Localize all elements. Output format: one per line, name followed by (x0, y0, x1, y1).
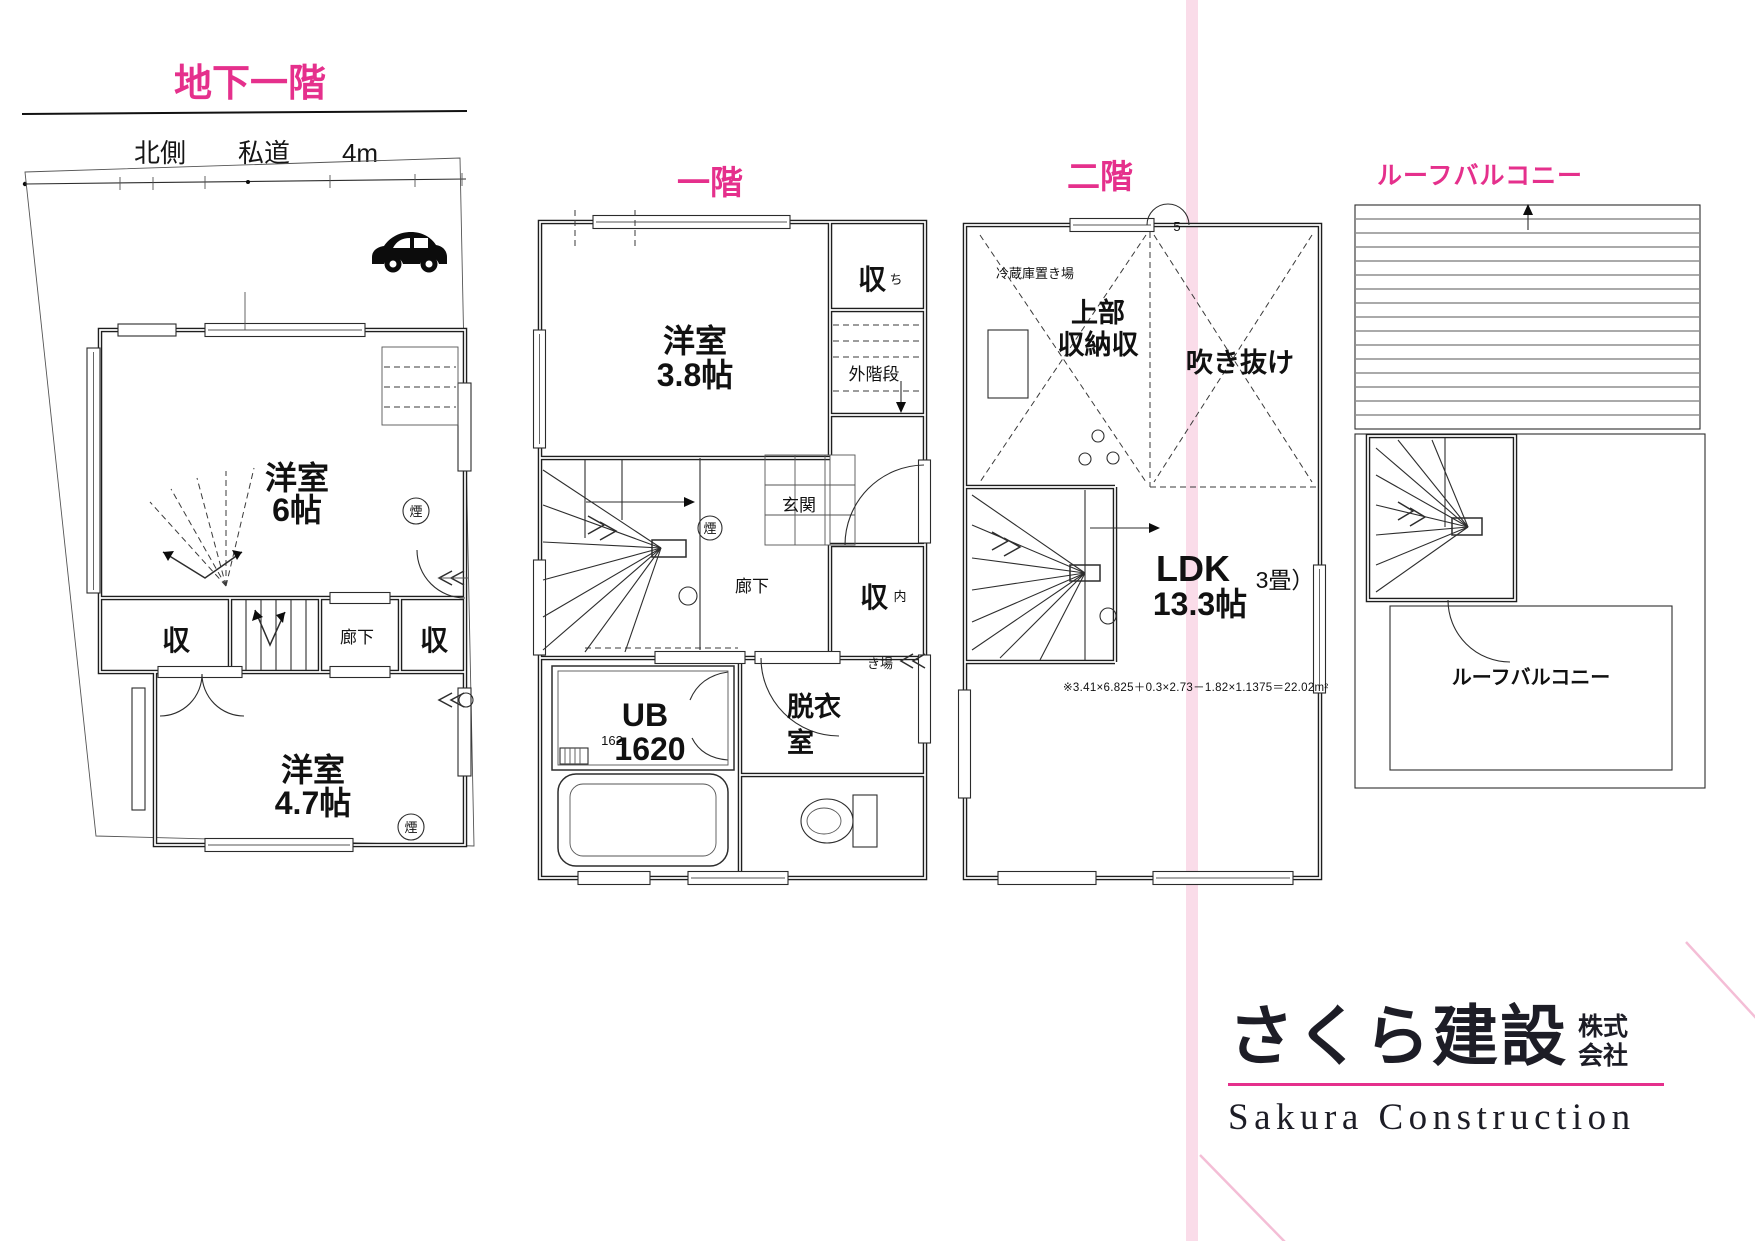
f2-void-label: 吹き抜け (1186, 348, 1294, 378)
f2-storage-label-l2: 収納収 (1058, 329, 1140, 360)
svg-text:煙: 煙 (703, 521, 716, 536)
b1-closet-dashed (382, 347, 458, 425)
f2-posts (1079, 430, 1119, 465)
floorplan-sheet: 北側 私道 4m (0, 0, 1755, 1241)
f2-ldk-size: 13.3帖 (1153, 586, 1247, 622)
car-icon (372, 232, 447, 273)
f1-ext-stairs-label: 外階段 (849, 365, 900, 384)
dimension-line (23, 173, 466, 190)
f1-ub-note: 162 (601, 733, 623, 748)
b1-room-lower-size: 4.7帖 (275, 785, 352, 821)
balcony-outer (1355, 434, 1705, 788)
b1-closet-left-label: 収 (162, 625, 191, 656)
f1-closet-top-note: ち (889, 272, 902, 287)
f1-entrance-label: 玄関 (782, 496, 816, 515)
second-floor-title: 二階 (950, 150, 1250, 198)
b1-room-upper-size: 6帖 (272, 492, 322, 528)
second-floor-plan: 5 冷蔵庫置き場 上部 収納収 吹き抜け LDK 13.3帖 3畳） (959, 204, 1329, 885)
company-name-en: Sakura Construction (1228, 1096, 1664, 1139)
roof-balcony-plan: ルーフバルコニー (1355, 204, 1705, 788)
f2-stairs-icon (972, 490, 1160, 660)
smoke-mark-icon: 煙 (403, 498, 429, 524)
company-logo: さくら建設 株式 会社 Sakura Construction (1228, 1002, 1664, 1139)
first-floor-plan: 洋室 3.8帖 収 ち 外階段 玄関 煙 廊下 収 内 き場 UB 1620 1… (534, 210, 931, 885)
roof-balcony-title: ルーフバルコニー (1320, 156, 1640, 192)
f1-dressing-room-label-l2: 室 (787, 727, 814, 758)
f1-room-size: 3.8帖 (657, 357, 734, 393)
basement-floor-plan: 北側 私道 4m (22, 111, 474, 852)
basement-title: 地下一階 (60, 52, 440, 107)
f2-windows (959, 219, 1326, 885)
b1-corridor-label: 廊下 (340, 628, 374, 647)
road-label: 北側 私道 4m (134, 138, 378, 168)
f1-room-name: 洋室 (663, 323, 727, 359)
f1-stairs-icon (543, 460, 697, 652)
company-name-jp: さくら建設 (1228, 1002, 1568, 1075)
roof-balcony-label: ルーフバルコニー (1452, 666, 1610, 689)
roof-stairs-icon (1376, 438, 1510, 662)
company-suffix-l2: 会社 (1578, 1043, 1628, 1072)
f1-ub-size: 1620 (614, 731, 685, 767)
f1-closet-top-label: 収 (858, 264, 887, 295)
company-suffix-l1: 株式 (1578, 1014, 1628, 1043)
f1-corridor-label: 廊下 (735, 577, 769, 596)
roof-hatch (1355, 204, 1700, 429)
f1-dressing-room-label-l1: 脱衣 (787, 691, 841, 722)
svg-text:煙: 煙 (404, 820, 417, 835)
smoke-mark-icon: 煙 (398, 814, 424, 840)
company-suffix: 株式 会社 (1578, 1014, 1628, 1072)
f2-walls (965, 225, 1320, 878)
f2-door-note: 5 (1173, 219, 1180, 234)
f2-tatami-note: 3畳） (1256, 567, 1315, 593)
f1-toilet-icon (801, 795, 877, 847)
b1-closet-right-label: 収 (420, 625, 449, 656)
b1-windows (87, 292, 471, 852)
title-underline (22, 111, 467, 114)
first-floor-title: 一階 (560, 156, 860, 204)
f1-walls (540, 222, 925, 878)
f2-fridge-label: 冷蔵庫置き場 (996, 266, 1074, 281)
f2-area-formula: ※3.41×6.825＋0.3×2.73－1.82×1.1375＝22.02m² (1063, 682, 1329, 694)
f1-ub-name: UB (622, 697, 668, 733)
f2-storage-label-l1: 上部 (1071, 297, 1125, 328)
b1-room-upper-name: 洋室 (265, 460, 329, 496)
smoke-mark-icon: 煙 (698, 516, 722, 540)
f2-ldk-name: LDK (1156, 548, 1230, 589)
svg-text:煙: 煙 (409, 504, 422, 519)
b1-room-lower-name: 洋室 (281, 752, 345, 788)
logo-underline (1228, 1083, 1664, 1086)
f2-counter (988, 330, 1028, 398)
f1-closet-mid-label: 収 (860, 582, 889, 613)
f1-kiba-label: き場 (867, 656, 893, 671)
f1-closet-mid-note: 内 (893, 589, 906, 604)
